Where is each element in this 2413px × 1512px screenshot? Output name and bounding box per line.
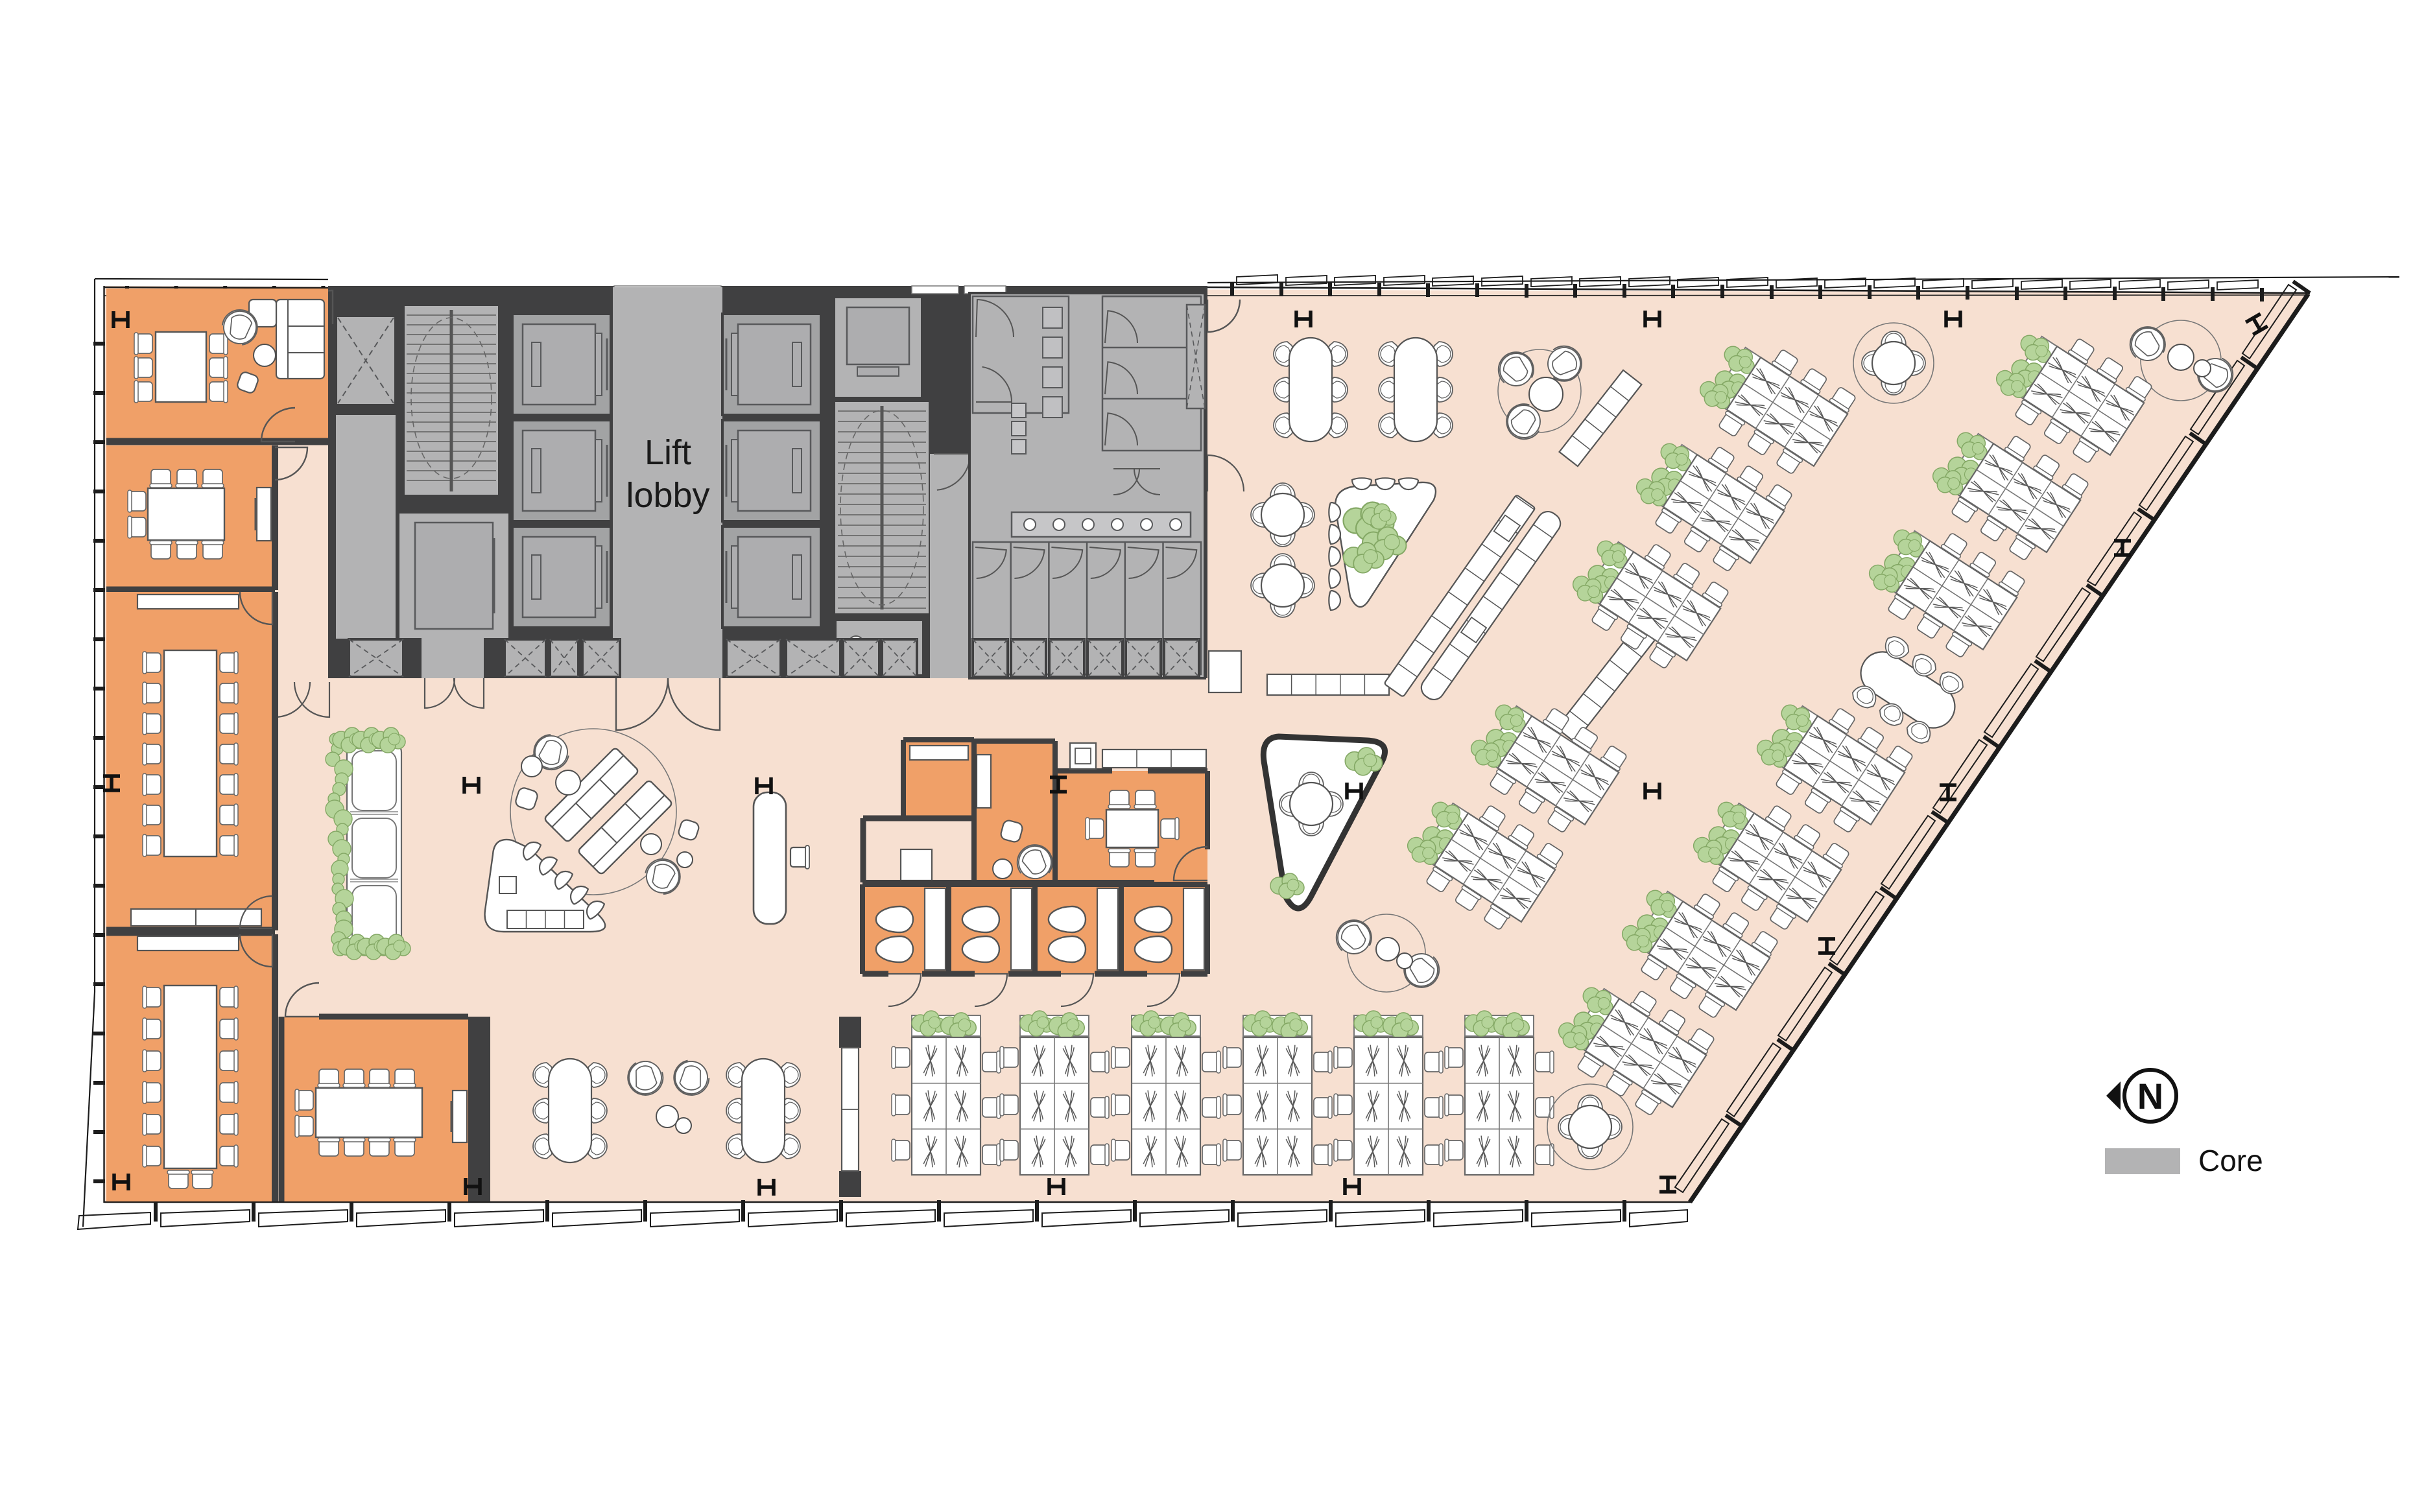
svg-text:lobby: lobby	[626, 476, 709, 515]
svg-text:Core: Core	[2198, 1144, 2263, 1177]
svg-text:N: N	[2137, 1076, 2163, 1116]
svg-text:Lift: Lift	[645, 433, 691, 472]
